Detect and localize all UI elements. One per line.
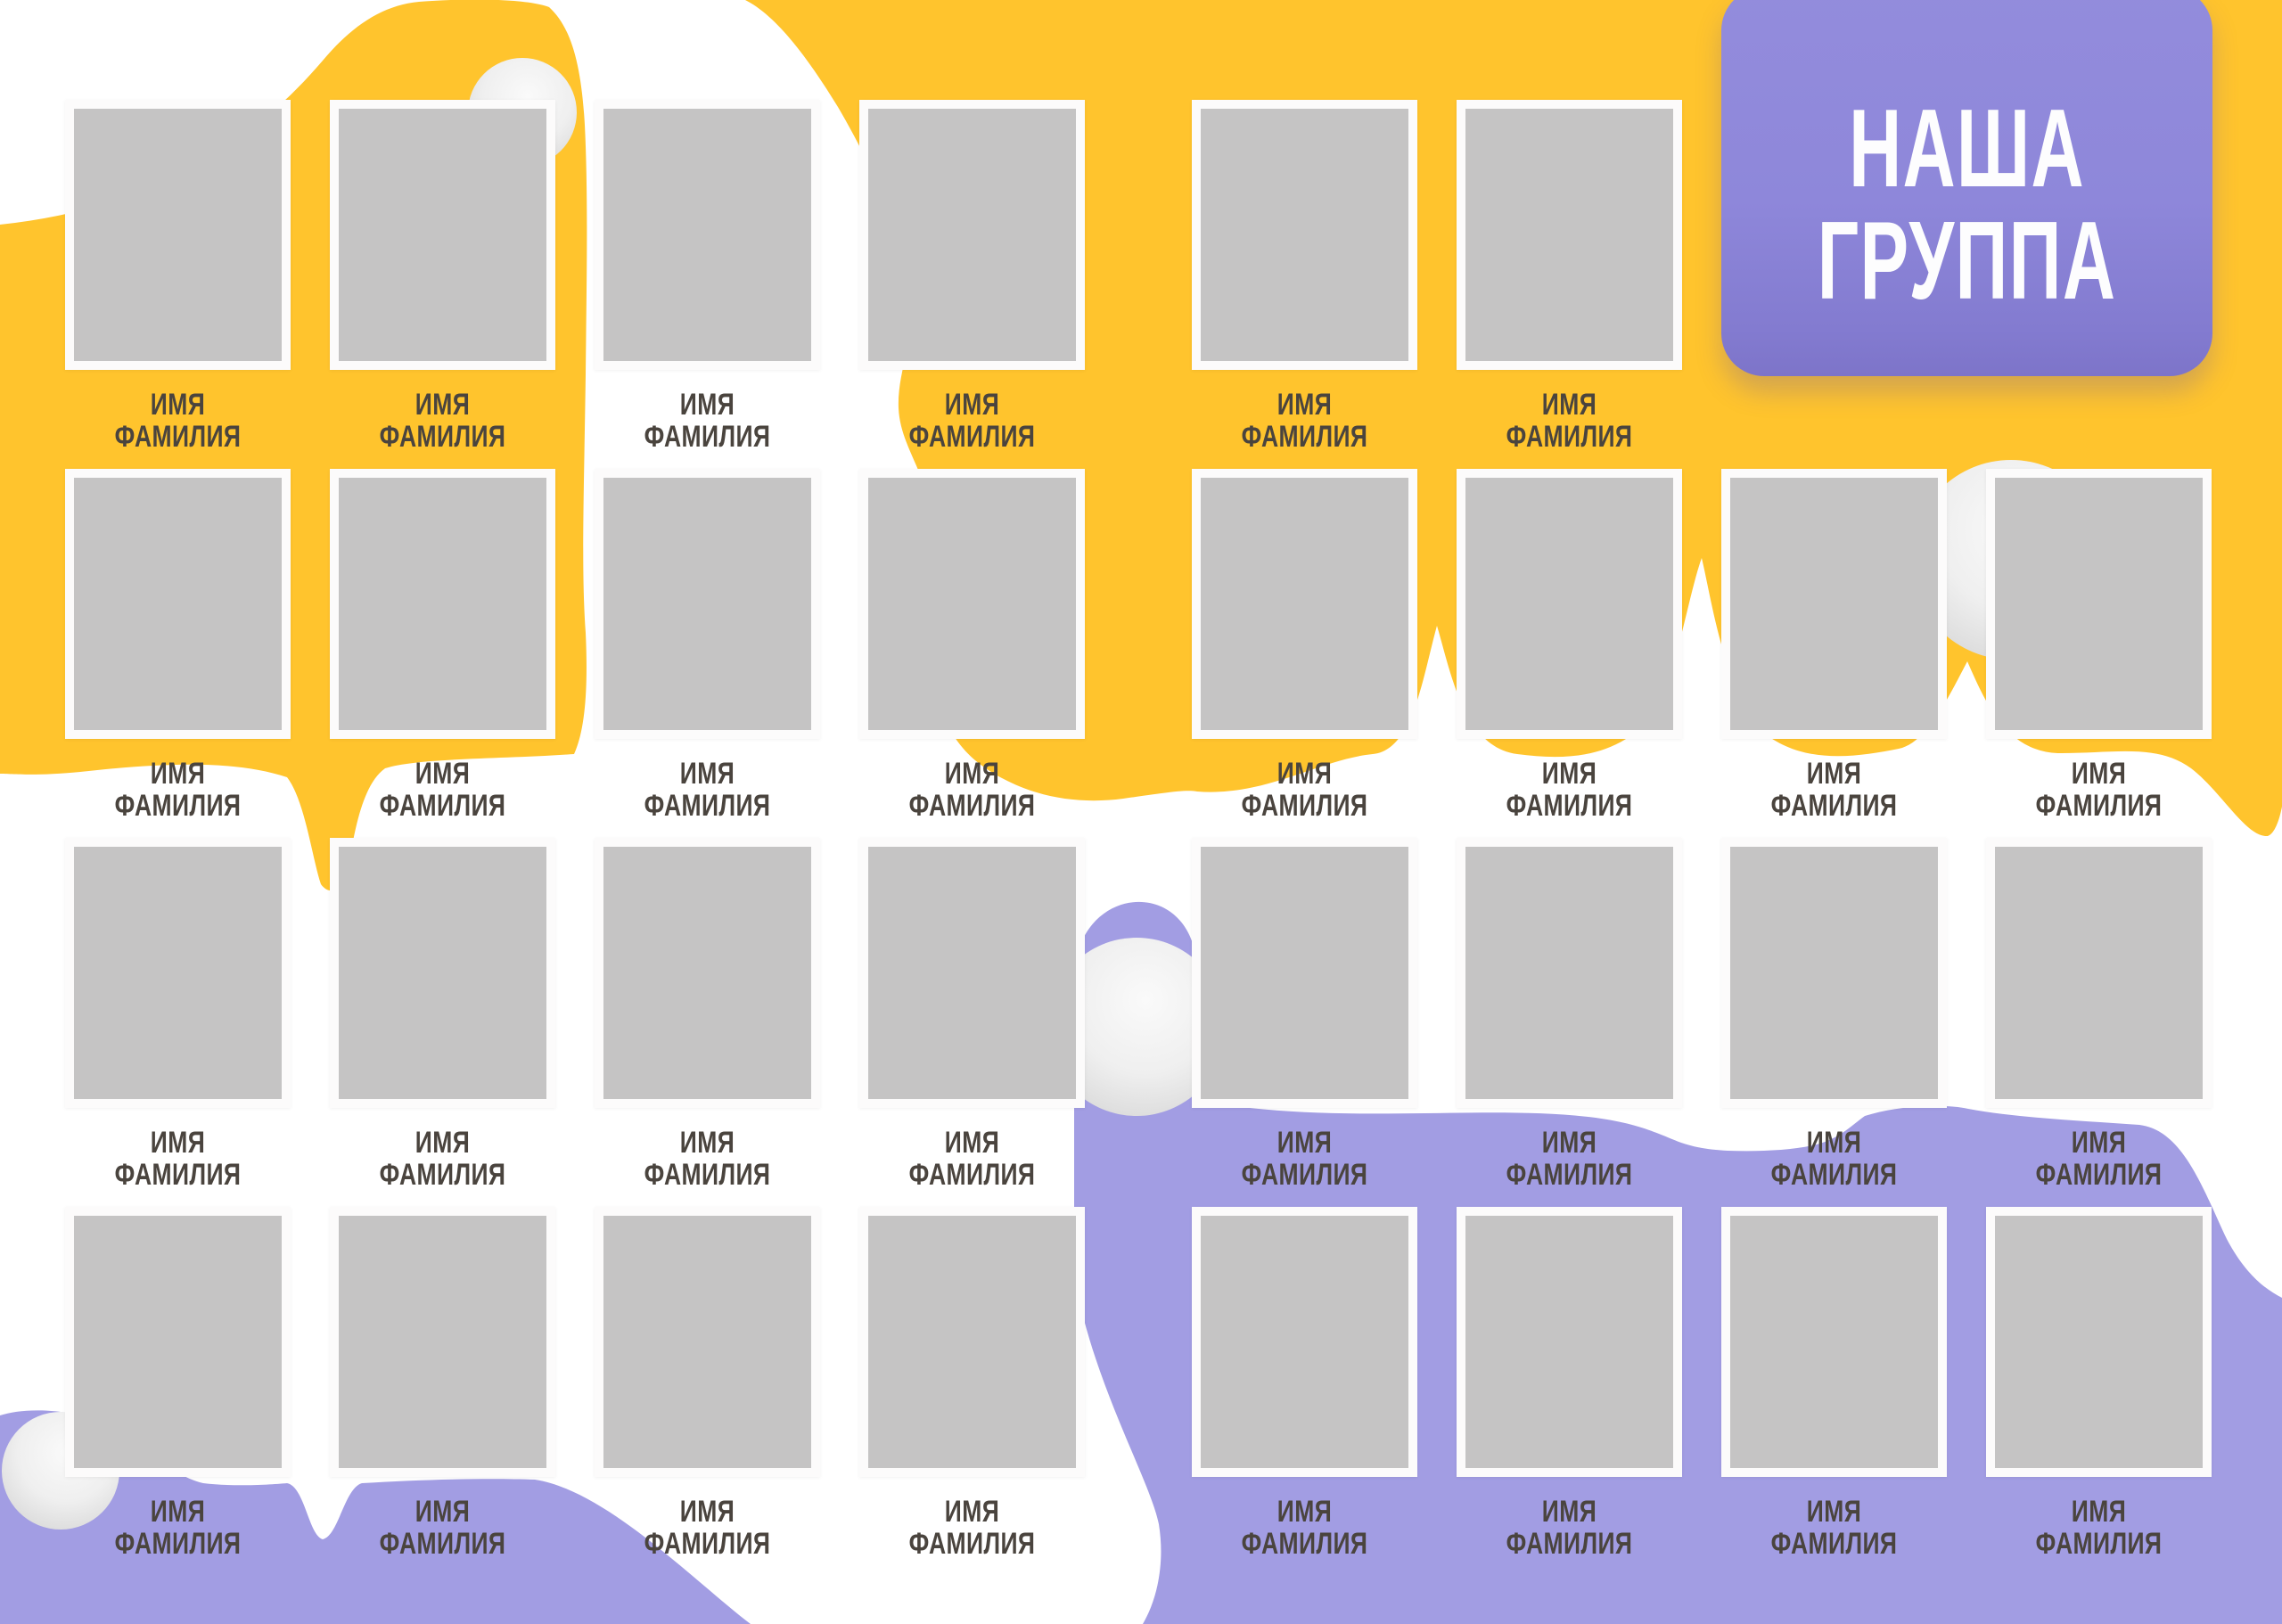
photo-placeholder[interactable] bbox=[65, 838, 291, 1108]
title-line-2: ГРУППА bbox=[1805, 205, 2130, 317]
photo-tile: ИМЯФАМИЛИЯ bbox=[1457, 838, 1682, 1108]
tile-name-line2: ФАМИЛИЯ bbox=[2011, 1159, 2187, 1191]
tile-name-line2: ФАМИЛИЯ bbox=[1482, 1528, 1657, 1560]
photo-placeholder[interactable] bbox=[1457, 469, 1682, 739]
tile-name-line1: ИМЯ bbox=[90, 758, 266, 790]
tile-name-label: ИМЯФАМИЛИЯ bbox=[884, 389, 1060, 453]
photo-placeholder[interactable] bbox=[1192, 469, 1417, 739]
tile-name-line1: ИМЯ bbox=[1217, 758, 1392, 790]
photo-placeholder[interactable] bbox=[859, 469, 1085, 739]
tile-name-label: ИМЯФАМИЛИЯ bbox=[355, 758, 530, 822]
photo-tile: ИМЯФАМИЛИЯ bbox=[1986, 1207, 2212, 1477]
tile-name-line2: ФАМИЛИЯ bbox=[355, 790, 530, 822]
tile-name-label: ИМЯФАМИЛИЯ bbox=[1217, 758, 1392, 822]
tile-name-line2: ФАМИЛИЯ bbox=[90, 790, 266, 822]
tile-name-label: ИМЯФАМИЛИЯ bbox=[90, 1496, 266, 1560]
photo-placeholder[interactable] bbox=[1986, 1207, 2212, 1477]
photo-placeholder[interactable] bbox=[1192, 100, 1417, 370]
tile-name-line1: ИМЯ bbox=[1217, 1127, 1392, 1159]
tile-name-label: ИМЯФАМИЛИЯ bbox=[2011, 1127, 2187, 1191]
tile-name-line1: ИМЯ bbox=[2011, 1496, 2187, 1528]
tile-name-line1: ИМЯ bbox=[620, 1127, 795, 1159]
photo-placeholder[interactable] bbox=[1986, 469, 2212, 739]
photo-tile: ИМЯФАМИЛИЯ bbox=[1192, 838, 1417, 1108]
photo-placeholder[interactable] bbox=[1457, 1207, 1682, 1477]
photo-placeholder[interactable] bbox=[65, 100, 291, 370]
photo-tile: ИМЯФАМИЛИЯ bbox=[859, 838, 1085, 1108]
tile-name-line1: ИМЯ bbox=[90, 1496, 266, 1528]
tile-name-line2: ФАМИЛИЯ bbox=[90, 421, 266, 453]
tile-name-line2: ФАМИЛИЯ bbox=[355, 421, 530, 453]
title-card: НАША ГРУППА bbox=[1721, 0, 2212, 376]
photo-placeholder[interactable] bbox=[1457, 100, 1682, 370]
tile-name-label: ИМЯФАМИЛИЯ bbox=[90, 758, 266, 822]
tile-name-line1: ИМЯ bbox=[2011, 758, 2187, 790]
photo-tile: ИМЯФАМИЛИЯ bbox=[595, 469, 820, 739]
tile-name-label: ИМЯФАМИЛИЯ bbox=[620, 389, 795, 453]
tile-name-line1: ИМЯ bbox=[1746, 1496, 1922, 1528]
photo-tile: ИМЯФАМИЛИЯ bbox=[1986, 469, 2212, 739]
photo-placeholder[interactable] bbox=[595, 1207, 820, 1477]
photo-placeholder[interactable] bbox=[1457, 838, 1682, 1108]
photo-tile: ИМЯФАМИЛИЯ bbox=[65, 1207, 291, 1477]
tile-name-line1: ИМЯ bbox=[1482, 1496, 1657, 1528]
tile-name-line1: ИМЯ bbox=[884, 758, 1060, 790]
tile-name-line2: ФАМИЛИЯ bbox=[1217, 1159, 1392, 1191]
tile-name-line1: ИМЯ bbox=[90, 1127, 266, 1159]
tile-name-label: ИМЯФАМИЛИЯ bbox=[884, 1496, 1060, 1560]
photo-placeholder[interactable] bbox=[1192, 838, 1417, 1108]
tile-name-line2: ФАМИЛИЯ bbox=[1217, 790, 1392, 822]
photo-tile: ИМЯФАМИЛИЯ bbox=[1457, 469, 1682, 739]
photo-tile: ИМЯФАМИЛИЯ bbox=[595, 1207, 820, 1477]
photo-tile: ИМЯФАМИЛИЯ bbox=[859, 469, 1085, 739]
tile-name-line1: ИМЯ bbox=[884, 1127, 1060, 1159]
tile-name-label: ИМЯФАМИЛИЯ bbox=[1217, 1496, 1392, 1560]
photo-placeholder[interactable] bbox=[1192, 1207, 1417, 1477]
tile-name-label: ИМЯФАМИЛИЯ bbox=[355, 389, 530, 453]
photo-tile: ИМЯФАМИЛИЯ bbox=[330, 1207, 555, 1477]
group-poster: ИМЯФАМИЛИЯИМЯФАМИЛИЯИМЯФАМИЛИЯИМЯФАМИЛИЯ… bbox=[0, 0, 2282, 1624]
tile-name-line1: ИМЯ bbox=[355, 389, 530, 421]
photo-tile: ИМЯФАМИЛИЯ bbox=[859, 1207, 1085, 1477]
photo-tile: ИМЯФАМИЛИЯ bbox=[1457, 1207, 1682, 1477]
tile-name-label: ИМЯФАМИЛИЯ bbox=[1217, 389, 1392, 453]
tile-name-line1: ИМЯ bbox=[1217, 1496, 1392, 1528]
photo-tile: ИМЯФАМИЛИЯ bbox=[1721, 469, 1947, 739]
photo-tile: ИМЯФАМИЛИЯ bbox=[595, 838, 820, 1108]
photo-placeholder[interactable] bbox=[595, 838, 820, 1108]
tile-name-label: ИМЯФАМИЛИЯ bbox=[1746, 1496, 1922, 1560]
photo-tile: ИМЯФАМИЛИЯ bbox=[859, 100, 1085, 370]
photo-placeholder[interactable] bbox=[859, 838, 1085, 1108]
tile-name-line1: ИМЯ bbox=[90, 389, 266, 421]
tile-name-line2: ФАМИЛИЯ bbox=[620, 790, 795, 822]
tile-name-line1: ИМЯ bbox=[620, 1496, 795, 1528]
photo-tile: ИМЯФАМИЛИЯ bbox=[1192, 1207, 1417, 1477]
photo-placeholder[interactable] bbox=[65, 1207, 291, 1477]
photo-tile: ИМЯФАМИЛИЯ bbox=[595, 100, 820, 370]
tile-name-line2: ФАМИЛИЯ bbox=[620, 1528, 795, 1560]
tile-name-line2: ФАМИЛИЯ bbox=[1482, 790, 1657, 822]
photo-tile: ИМЯФАМИЛИЯ bbox=[65, 469, 291, 739]
photo-tile: ИМЯФАМИЛИЯ bbox=[1457, 100, 1682, 370]
tile-name-label: ИМЯФАМИЛИЯ bbox=[1746, 758, 1922, 822]
tile-name-line1: ИМЯ bbox=[620, 389, 795, 421]
tile-name-line1: ИМЯ bbox=[1217, 389, 1392, 421]
tile-name-line2: ФАМИЛИЯ bbox=[90, 1159, 266, 1191]
tile-name-label: ИМЯФАМИЛИЯ bbox=[2011, 758, 2187, 822]
tile-name-line2: ФАМИЛИЯ bbox=[620, 421, 795, 453]
tile-name-label: ИМЯФАМИЛИЯ bbox=[620, 1127, 795, 1191]
photo-placeholder[interactable] bbox=[859, 1207, 1085, 1477]
tile-name-label: ИМЯФАМИЛИЯ bbox=[1482, 389, 1657, 453]
tile-name-line2: ФАМИЛИЯ bbox=[355, 1159, 530, 1191]
tile-name-line2: ФАМИЛИЯ bbox=[2011, 1528, 2187, 1560]
photo-tile: ИМЯФАМИЛИЯ bbox=[1721, 1207, 1947, 1477]
tile-name-label: ИМЯФАМИЛИЯ bbox=[620, 758, 795, 822]
photo-tile: ИМЯФАМИЛИЯ bbox=[65, 838, 291, 1108]
tile-name-label: ИМЯФАМИЛИЯ bbox=[355, 1127, 530, 1191]
photo-placeholder[interactable] bbox=[330, 469, 555, 739]
photo-placeholder[interactable] bbox=[330, 838, 555, 1108]
tile-name-line2: ФАМИЛИЯ bbox=[1217, 421, 1392, 453]
tile-name-label: ИМЯФАМИЛИЯ bbox=[884, 1127, 1060, 1191]
tile-name-line1: ИМЯ bbox=[1746, 1127, 1922, 1159]
tile-name-label: ИМЯФАМИЛИЯ bbox=[90, 1127, 266, 1191]
tile-name-line1: ИМЯ bbox=[2011, 1127, 2187, 1159]
photo-tile: ИМЯФАМИЛИЯ bbox=[330, 838, 555, 1108]
tile-name-line1: ИМЯ bbox=[1482, 758, 1657, 790]
tile-name-line1: ИМЯ bbox=[884, 389, 1060, 421]
photo-tile: ИМЯФАМИЛИЯ bbox=[1192, 469, 1417, 739]
tile-name-line1: ИМЯ bbox=[620, 758, 795, 790]
tile-name-label: ИМЯФАМИЛИЯ bbox=[355, 1496, 530, 1560]
tile-name-line2: ФАМИЛИЯ bbox=[1217, 1528, 1392, 1560]
tile-name-label: ИМЯФАМИЛИЯ bbox=[90, 389, 266, 453]
photo-placeholder[interactable] bbox=[1721, 1207, 1947, 1477]
tile-name-line1: ИМЯ bbox=[355, 758, 530, 790]
photo-tile: ИМЯФАМИЛИЯ bbox=[330, 100, 555, 370]
tile-name-label: ИМЯФАМИЛИЯ bbox=[2011, 1496, 2187, 1560]
photo-tile: ИМЯФАМИЛИЯ bbox=[65, 100, 291, 370]
tile-name-line1: ИМЯ bbox=[355, 1496, 530, 1528]
photo-placeholder[interactable] bbox=[1721, 469, 1947, 739]
photo-tile: ИМЯФАМИЛИЯ bbox=[1986, 838, 2212, 1108]
tile-name-line2: ФАМИЛИЯ bbox=[1746, 1528, 1922, 1560]
tile-name-label: ИМЯФАМИЛИЯ bbox=[1746, 1127, 1922, 1191]
tile-name-line2: ФАМИЛИЯ bbox=[2011, 790, 2187, 822]
tile-name-label: ИМЯФАМИЛИЯ bbox=[1482, 1496, 1657, 1560]
photo-placeholder[interactable] bbox=[65, 469, 291, 739]
tile-name-line2: ФАМИЛИЯ bbox=[884, 421, 1060, 453]
photo-placeholder[interactable] bbox=[1986, 838, 2212, 1108]
tile-name-line2: ФАМИЛИЯ bbox=[884, 1528, 1060, 1560]
photo-placeholder[interactable] bbox=[595, 469, 820, 739]
tile-name-line1: ИМЯ bbox=[1482, 389, 1657, 421]
photo-tile: ИМЯФАМИЛИЯ bbox=[330, 469, 555, 739]
tile-name-line2: ФАМИЛИЯ bbox=[884, 790, 1060, 822]
title-line-1: НАША bbox=[1805, 93, 2130, 205]
tile-name-line2: ФАМИЛИЯ bbox=[1746, 1159, 1922, 1191]
photo-placeholder[interactable] bbox=[859, 100, 1085, 370]
tile-name-line2: ФАМИЛИЯ bbox=[620, 1159, 795, 1191]
photo-placeholder[interactable] bbox=[595, 100, 820, 370]
photo-placeholder[interactable] bbox=[330, 100, 555, 370]
tile-name-line2: ФАМИЛИЯ bbox=[884, 1159, 1060, 1191]
photo-placeholder[interactable] bbox=[1721, 838, 1947, 1108]
tile-name-line2: ФАМИЛИЯ bbox=[355, 1528, 530, 1560]
tile-name-label: ИМЯФАМИЛИЯ bbox=[1217, 1127, 1392, 1191]
tile-name-label: ИМЯФАМИЛИЯ bbox=[620, 1496, 795, 1560]
tile-name-line1: ИМЯ bbox=[884, 1496, 1060, 1528]
tile-name-label: ИМЯФАМИЛИЯ bbox=[1482, 1127, 1657, 1191]
photo-tile: ИМЯФАМИЛИЯ bbox=[1721, 838, 1947, 1108]
tile-name-line2: ФАМИЛИЯ bbox=[1482, 1159, 1657, 1191]
tile-name-line2: ФАМИЛИЯ bbox=[90, 1528, 266, 1560]
tile-name-line2: ФАМИЛИЯ bbox=[1482, 421, 1657, 453]
photo-placeholder[interactable] bbox=[330, 1207, 555, 1477]
tile-name-label: ИМЯФАМИЛИЯ bbox=[884, 758, 1060, 822]
tile-name-line1: ИМЯ bbox=[1482, 1127, 1657, 1159]
tile-name-label: ИМЯФАМИЛИЯ bbox=[1482, 758, 1657, 822]
photo-tile: ИМЯФАМИЛИЯ bbox=[1192, 100, 1417, 370]
tile-name-line1: ИМЯ bbox=[355, 1127, 530, 1159]
tile-name-line1: ИМЯ bbox=[1746, 758, 1922, 790]
tile-name-line2: ФАМИЛИЯ bbox=[1746, 790, 1922, 822]
